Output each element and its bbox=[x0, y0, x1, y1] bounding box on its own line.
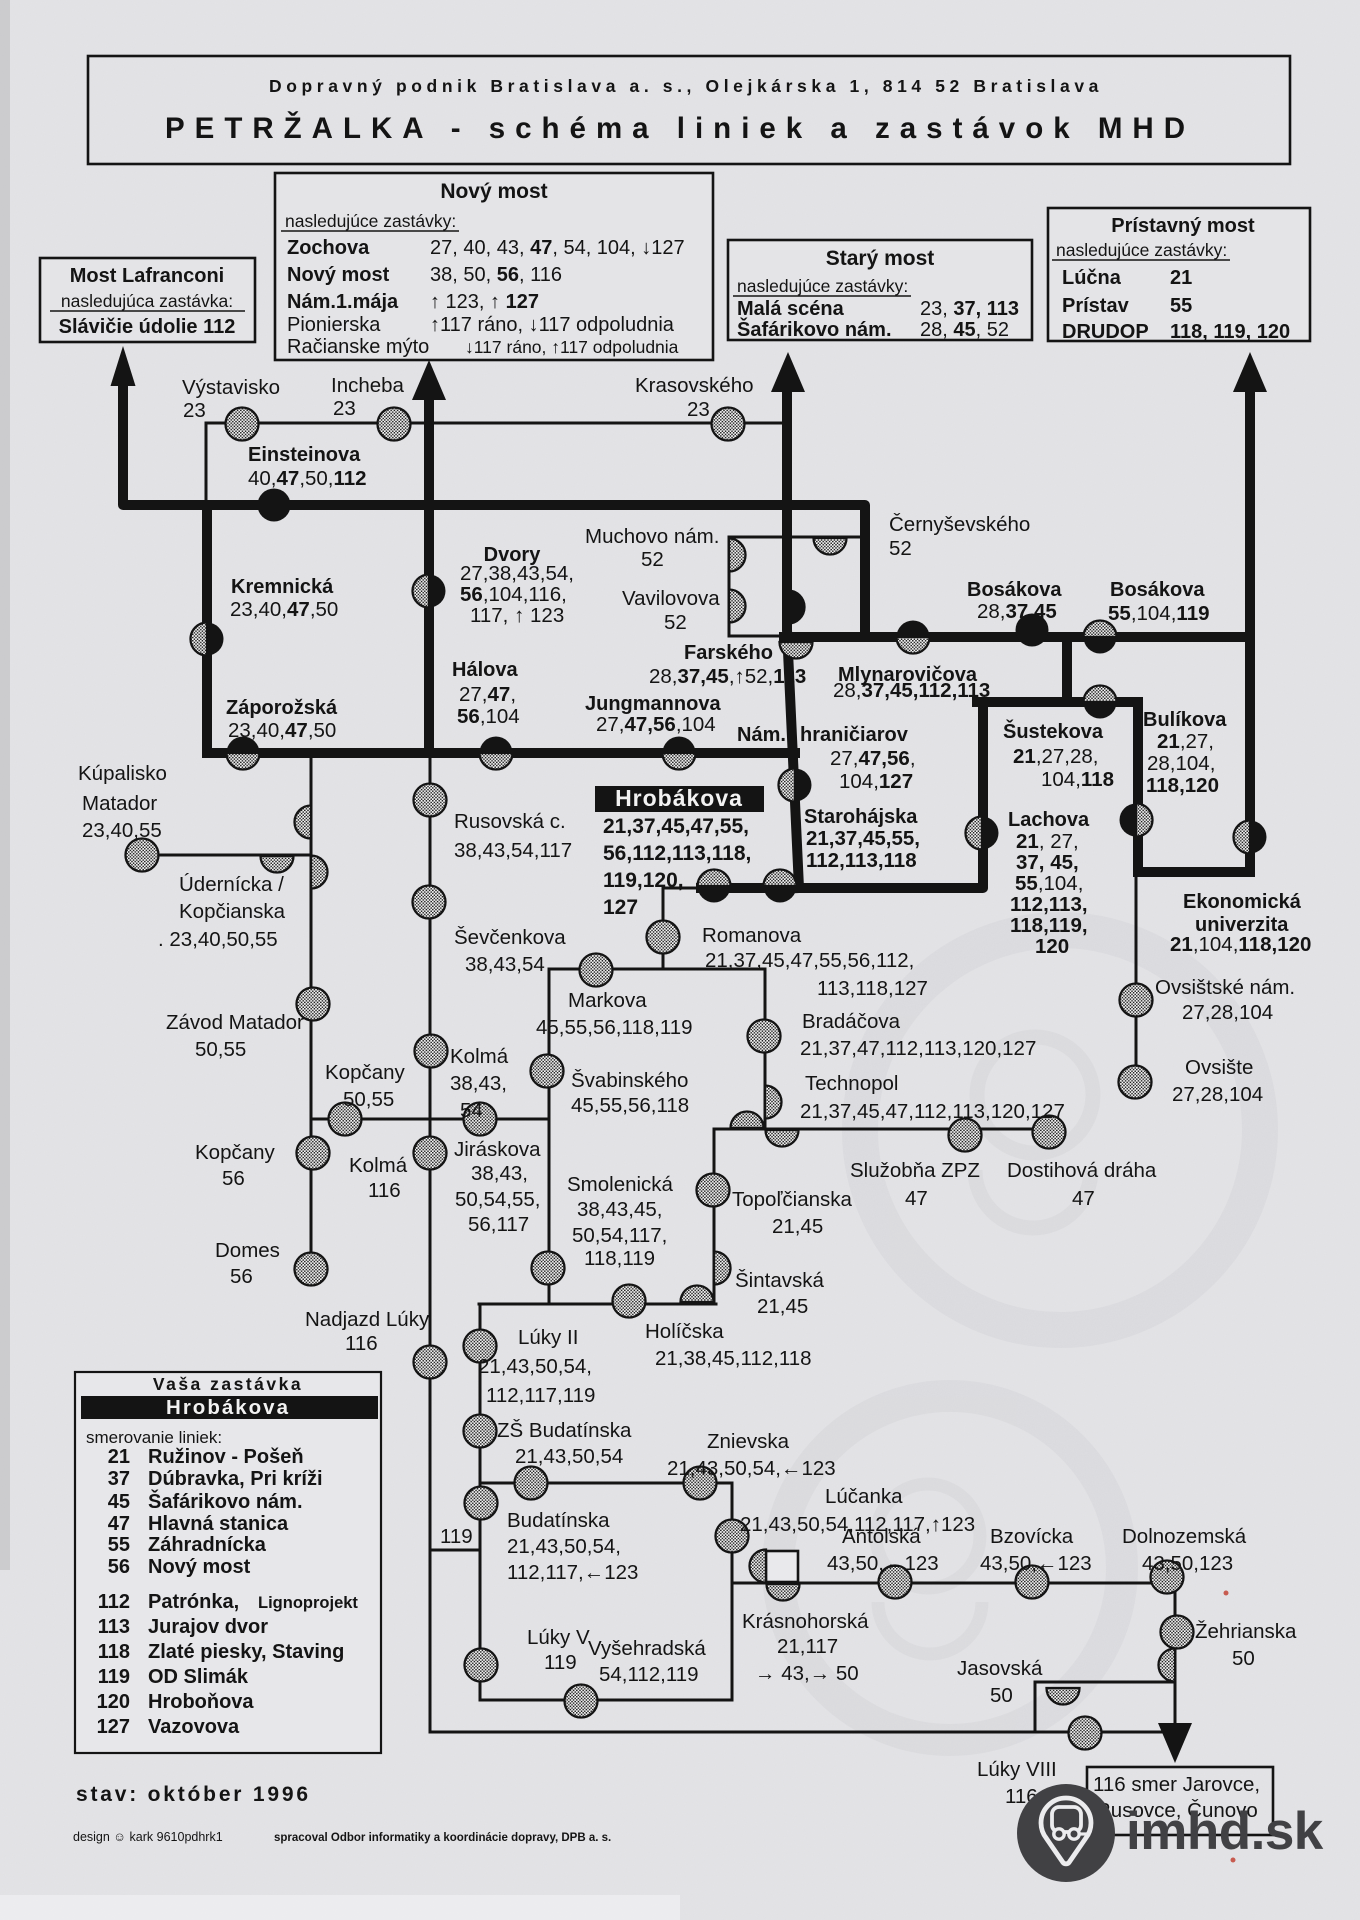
svg-text:DRUDOP: DRUDOP bbox=[1062, 321, 1149, 343]
svg-text:118, 119, 120: 118, 119, 120 bbox=[1170, 321, 1290, 343]
svg-text:Žehrianska: Žehrianska bbox=[1195, 1620, 1297, 1643]
svg-text:hraničiarov: hraničiarov bbox=[800, 724, 909, 746]
svg-text:38,43,45,: 38,43,45, bbox=[577, 1198, 663, 1221]
svg-text:Lúčanka: Lúčanka bbox=[825, 1485, 903, 1508]
svg-text:Záhradnícka: Záhradnícka bbox=[148, 1534, 267, 1556]
svg-text:119: 119 bbox=[98, 1666, 130, 1688]
svg-text:21,37,45,47,112,113,120,127: 21,37,45,47,112,113,120,127 bbox=[800, 1100, 1065, 1123]
svg-text:Smolenická: Smolenická bbox=[567, 1173, 674, 1196]
svg-text:21,38,45,112,118: 21,38,45,112,118 bbox=[655, 1347, 812, 1370]
svg-text:27,47,56,104: 27,47,56,104 bbox=[596, 713, 716, 736]
svg-text:27,38,43,54,: 27,38,43,54, bbox=[460, 562, 574, 585]
svg-text:21,37,47,112,113,120,127: 21,37,47,112,113,120,127 bbox=[800, 1037, 1036, 1060]
svg-text:Hroboňova: Hroboňova bbox=[148, 1691, 254, 1713]
svg-text:Šafárikovo nám.: Šafárikovo nám. bbox=[148, 1489, 303, 1513]
svg-text:38,43,54: 38,43,54 bbox=[465, 953, 545, 976]
svg-text:Výstavisko: Výstavisko bbox=[182, 376, 280, 399]
svg-text:21,27,: 21,27, bbox=[1157, 730, 1214, 753]
svg-text:Jurajov dvor: Jurajov dvor bbox=[148, 1616, 268, 1638]
svg-text:Lúky VIII: Lúky VIII bbox=[977, 1758, 1057, 1781]
svg-text:112,113,: 112,113, bbox=[1010, 893, 1088, 916]
svg-text:21,37,45,47,55,56,112,: 21,37,45,47,55,56,112, bbox=[705, 949, 914, 972]
svg-text:38,43,: 38,43, bbox=[450, 1072, 507, 1095]
svg-text:119: 119 bbox=[440, 1525, 473, 1548]
svg-text:Bzovícka: Bzovícka bbox=[990, 1525, 1074, 1548]
svg-text:Patrónka,: Patrónka, bbox=[148, 1591, 239, 1613]
svg-text:28,37,45,112,113: 28,37,45,112,113 bbox=[833, 679, 990, 702]
svg-text:21,104,118,120: 21,104,118,120 bbox=[1170, 933, 1311, 956]
svg-text:23: 23 bbox=[687, 398, 710, 421]
svg-text:50,54,117,: 50,54,117, bbox=[572, 1224, 667, 1247]
svg-text:↓117 ráno, ↑117 odpoludnia: ↓117 ráno, ↑117 odpoludnia bbox=[465, 337, 679, 357]
svg-text:design ☺ kark 9610pdhrk1: design ☺ kark 9610pdhrk1 bbox=[73, 1830, 223, 1844]
svg-text:113: 113 bbox=[98, 1616, 130, 1638]
svg-text:Einsteinova: Einsteinova bbox=[248, 444, 361, 466]
svg-text:116 smer Jarovce,: 116 smer Jarovce, bbox=[1093, 1773, 1260, 1796]
svg-text:Incheba: Incheba bbox=[331, 374, 405, 397]
svg-text:43,50,123: 43,50,123 bbox=[1142, 1552, 1233, 1575]
svg-text:Hálova: Hálova bbox=[452, 659, 518, 681]
svg-text:Vazovova: Vazovova bbox=[148, 1716, 240, 1738]
svg-text:Hrobákova: Hrobákova bbox=[166, 1396, 290, 1419]
svg-text:Šintavská: Šintavská bbox=[735, 1269, 824, 1292]
svg-text:Ovsište: Ovsište bbox=[1185, 1056, 1253, 1079]
svg-text:112,117,←123: 112,117,←123 bbox=[507, 1561, 638, 1584]
svg-text:40,47,50,112: 40,47,50,112 bbox=[248, 467, 367, 490]
svg-text:Šustekova: Šustekova bbox=[1003, 719, 1104, 743]
svg-text:119,120,: 119,120, bbox=[603, 869, 684, 892]
svg-text:127: 127 bbox=[97, 1716, 130, 1738]
svg-text:21,43,50,54,: 21,43,50,54, bbox=[478, 1355, 592, 1378]
svg-text:21,43,50,54: 21,43,50,54 bbox=[515, 1445, 623, 1468]
svg-text:21, 27,: 21, 27, bbox=[1016, 830, 1079, 853]
svg-text:104,118: 104,118 bbox=[1041, 768, 1114, 791]
svg-text:Ružinov - Pošeň: Ružinov - Pošeň bbox=[148, 1446, 304, 1468]
svg-text:Muchovo nám.: Muchovo nám. bbox=[585, 525, 719, 548]
svg-text:Nový most: Nový most bbox=[440, 180, 547, 203]
svg-text:Bradáčova: Bradáčova bbox=[802, 1010, 901, 1033]
svg-text:Hlavná stanica: Hlavná stanica bbox=[148, 1513, 289, 1535]
svg-text:Lúky II: Lúky II bbox=[518, 1326, 578, 1349]
svg-text:21,45: 21,45 bbox=[772, 1215, 823, 1238]
svg-text:Bosákova: Bosákova bbox=[1110, 579, 1205, 601]
svg-text:37, 45,: 37, 45, bbox=[1016, 851, 1079, 874]
svg-text:38, 50, 56, 116: 38, 50, 56, 116 bbox=[430, 264, 562, 286]
svg-text:Vaša zastávka: Vaša zastávka bbox=[153, 1374, 303, 1394]
svg-text:54,112,119: 54,112,119 bbox=[599, 1663, 699, 1686]
svg-text:28,37,45: 28,37,45 bbox=[977, 600, 1057, 623]
svg-text:21,43,50,54,←123: 21,43,50,54,←123 bbox=[667, 1457, 836, 1480]
svg-text:. 23,40,50,55: . 23,40,50,55 bbox=[158, 928, 278, 951]
svg-text:imhd.sk: imhd.sk bbox=[1126, 1802, 1324, 1861]
svg-text:Kopčianska: Kopčianska bbox=[179, 900, 286, 923]
svg-text:Lúky V: Lúky V bbox=[527, 1626, 590, 1649]
svg-text:27,47,: 27,47, bbox=[459, 683, 516, 706]
svg-text:21: 21 bbox=[108, 1446, 130, 1468]
svg-text:Nový most: Nový most bbox=[287, 264, 390, 286]
svg-text:27,47,56,: 27,47,56, bbox=[830, 747, 916, 770]
svg-text:Nám.1.mája: Nám.1.mája bbox=[287, 291, 399, 313]
svg-text:23,40,47,50: 23,40,47,50 bbox=[230, 598, 338, 621]
svg-text:nasledujúce zastávky:: nasledujúce zastávky: bbox=[737, 276, 908, 296]
svg-text:21: 21 bbox=[1170, 267, 1192, 289]
svg-text:Technopol: Technopol bbox=[805, 1072, 898, 1095]
svg-text:Služobňa ZPZ: Služobňa ZPZ bbox=[850, 1159, 980, 1182]
svg-text:Topoľčianska: Topoľčianska bbox=[732, 1188, 853, 1211]
svg-text:Starý most: Starý most bbox=[826, 247, 935, 270]
svg-text:127: 127 bbox=[603, 896, 638, 919]
svg-text:56,117: 56,117 bbox=[468, 1213, 529, 1236]
svg-text:Ekonomická: Ekonomická bbox=[1183, 891, 1302, 913]
svg-text:56: 56 bbox=[108, 1556, 130, 1578]
svg-text:Dostihová dráha: Dostihová dráha bbox=[1007, 1159, 1157, 1182]
svg-text:Znievska: Znievska bbox=[707, 1430, 790, 1453]
svg-text:56,104,116,: 56,104,116, bbox=[460, 583, 567, 606]
svg-text:Starohájska: Starohájska bbox=[804, 806, 918, 828]
svg-text:Hrobákova: Hrobákova bbox=[615, 785, 743, 811]
svg-text:→ 43,→ 50: → 43,→ 50 bbox=[755, 1662, 859, 1685]
svg-text:Kremnická: Kremnická bbox=[231, 576, 334, 598]
svg-text:PETRŽALKA - schéma liniek a za: PETRŽALKA - schéma liniek a zastávok MHD bbox=[165, 111, 1195, 145]
svg-text:45,55,56,118: 45,55,56,118 bbox=[571, 1094, 689, 1117]
svg-text:50: 50 bbox=[990, 1684, 1013, 1707]
svg-text:120: 120 bbox=[1035, 935, 1069, 958]
svg-text:47: 47 bbox=[1072, 1187, 1095, 1210]
svg-text:104,127: 104,127 bbox=[839, 770, 913, 793]
svg-text:118,120: 118,120 bbox=[1146, 774, 1219, 797]
svg-text:23,40,55: 23,40,55 bbox=[82, 819, 162, 842]
svg-text:23, 37, 113: 23, 37, 113 bbox=[920, 298, 1019, 320]
svg-text:55,104,: 55,104, bbox=[1015, 872, 1083, 895]
svg-text:Budatínska: Budatínska bbox=[507, 1509, 610, 1532]
svg-text:↑117 ráno, ↓117 odpoludnia: ↑117 ráno, ↓117 odpoludnia bbox=[430, 314, 675, 336]
svg-text:Zlaté piesky, Staving: Zlaté piesky, Staving bbox=[148, 1641, 344, 1663]
svg-text:Farského: Farského bbox=[684, 642, 773, 664]
svg-text:OD Slimák: OD Slimák bbox=[148, 1666, 249, 1688]
svg-text:nasledujúce zastávky:: nasledujúce zastávky: bbox=[285, 211, 456, 231]
svg-text:37: 37 bbox=[108, 1468, 130, 1490]
svg-text:Kopčany: Kopčany bbox=[195, 1141, 276, 1164]
svg-text:Krásnohorská: Krásnohorská bbox=[742, 1610, 869, 1633]
svg-text:Vavilovova: Vavilovova bbox=[622, 587, 720, 610]
svg-text:47: 47 bbox=[108, 1513, 130, 1535]
svg-text:118,119: 118,119 bbox=[584, 1247, 655, 1270]
svg-text:Záporožská: Záporožská bbox=[226, 697, 338, 719]
svg-text:Dolnozemská: Dolnozemská bbox=[1122, 1525, 1247, 1548]
svg-text:118,119,: 118,119, bbox=[1010, 914, 1088, 937]
svg-text:28,37,45,↑52,113: 28,37,45,↑52,113 bbox=[649, 665, 806, 688]
svg-text:Švabinského: Švabinského bbox=[571, 1069, 688, 1092]
svg-text:nasledujúce zastávky:: nasledujúce zastávky: bbox=[1056, 240, 1227, 260]
svg-text:112: 112 bbox=[98, 1591, 130, 1613]
svg-text:120: 120 bbox=[97, 1691, 130, 1713]
svg-text:Nadjazd Lúky: Nadjazd Lúky bbox=[305, 1308, 430, 1331]
svg-text:55: 55 bbox=[1170, 295, 1192, 317]
svg-text:Jungmannova: Jungmannova bbox=[585, 693, 721, 715]
svg-text:27, 40, 43, 47, 54, 104, ↓127: 27, 40, 43, 47, 54, 104, ↓127 bbox=[430, 237, 685, 259]
svg-text:smerovanie liniek:: smerovanie liniek: bbox=[86, 1428, 222, 1447]
svg-text:Kolmá: Kolmá bbox=[349, 1154, 408, 1177]
svg-text:117, ↑ 123: 117, ↑ 123 bbox=[470, 604, 564, 627]
svg-text:Šafárikovo nám.: Šafárikovo nám. bbox=[737, 317, 892, 341]
svg-text:Antolská: Antolská bbox=[842, 1525, 921, 1548]
svg-text:52: 52 bbox=[641, 548, 664, 571]
svg-text:Dúbravka, Pri kríži: Dúbravka, Pri kríži bbox=[148, 1468, 323, 1490]
svg-text:52: 52 bbox=[889, 537, 912, 560]
svg-text:54: 54 bbox=[460, 1099, 483, 1122]
svg-text:55,104,119: 55,104,119 bbox=[1108, 602, 1210, 625]
svg-text:23,40,47,50: 23,40,47,50 bbox=[228, 719, 336, 742]
svg-text:Bosákova: Bosákova bbox=[967, 579, 1062, 601]
svg-text:Prístav: Prístav bbox=[1062, 295, 1130, 317]
svg-text:43,50,←123: 43,50,←123 bbox=[827, 1552, 939, 1575]
svg-text:50,54,55,: 50,54,55, bbox=[455, 1188, 541, 1211]
svg-text:43,50,←123: 43,50,←123 bbox=[980, 1552, 1092, 1575]
svg-text:55: 55 bbox=[108, 1534, 130, 1556]
svg-text:21,117: 21,117 bbox=[777, 1635, 838, 1658]
svg-text:23: 23 bbox=[333, 397, 356, 420]
svg-text:Holíčska: Holíčska bbox=[645, 1320, 724, 1343]
svg-text:Domes: Domes bbox=[215, 1239, 280, 1262]
svg-text:50,55: 50,55 bbox=[195, 1038, 246, 1061]
svg-text:Ševčenkova: Ševčenkova bbox=[454, 926, 566, 949]
svg-text:Slávičie údolie 112: Slávičie údolie 112 bbox=[59, 316, 236, 338]
svg-text:Kúpalisko: Kúpalisko bbox=[78, 762, 167, 785]
svg-text:23: 23 bbox=[183, 399, 206, 422]
svg-text:spracoval Odbor informatiky a: spracoval Odbor informatiky a koordináci… bbox=[274, 1832, 611, 1844]
svg-text:52: 52 bbox=[664, 611, 687, 634]
svg-text:Lachova: Lachova bbox=[1008, 809, 1090, 831]
svg-text:Matador: Matador bbox=[82, 792, 157, 815]
svg-text:27,28,104: 27,28,104 bbox=[1172, 1083, 1263, 1106]
svg-text:118: 118 bbox=[98, 1641, 130, 1663]
svg-text:119: 119 bbox=[544, 1651, 577, 1674]
svg-text:Krasovského: Krasovského bbox=[635, 374, 754, 397]
svg-text:Jiráskova: Jiráskova bbox=[454, 1138, 541, 1161]
svg-text:Nový most: Nový most bbox=[148, 1556, 251, 1578]
svg-text:28,104,: 28,104, bbox=[1147, 752, 1215, 775]
svg-text:stav: október 1996: stav: október 1996 bbox=[76, 1783, 311, 1806]
svg-text:116: 116 bbox=[345, 1332, 378, 1355]
svg-text:Lignoprojekt: Lignoprojekt bbox=[258, 1594, 358, 1612]
svg-text:ZŠ Budatínska: ZŠ Budatínska bbox=[497, 1419, 632, 1442]
svg-text:45: 45 bbox=[108, 1491, 130, 1513]
svg-text:Černyševského: Černyševského bbox=[889, 513, 1030, 536]
svg-text:Závod Matador: Závod Matador bbox=[166, 1011, 304, 1034]
svg-text:Ovsištské nám.: Ovsištské nám. bbox=[1155, 976, 1295, 999]
svg-text:56,112,113,118,: 56,112,113,118, bbox=[603, 842, 751, 865]
svg-text:112,117,119: 112,117,119 bbox=[486, 1384, 595, 1407]
svg-text:38,43,54,117: 38,43,54,117 bbox=[454, 839, 572, 862]
svg-text:50: 50 bbox=[1232, 1647, 1255, 1670]
svg-text:116: 116 bbox=[368, 1179, 401, 1202]
svg-text:56: 56 bbox=[222, 1167, 245, 1190]
svg-text:56: 56 bbox=[230, 1265, 253, 1288]
svg-text:Bulíkova: Bulíkova bbox=[1143, 709, 1227, 731]
svg-text:Kolmá: Kolmá bbox=[450, 1045, 509, 1068]
svg-text:Romanova: Romanova bbox=[702, 924, 802, 947]
svg-text:Vyšehradská: Vyšehradská bbox=[588, 1637, 706, 1660]
svg-text:21,37,45,47,55,: 21,37,45,47,55, bbox=[603, 815, 749, 838]
svg-text:28, 45, 52: 28, 45, 52 bbox=[920, 319, 1009, 341]
svg-text:21,43,50,54,: 21,43,50,54, bbox=[507, 1535, 621, 1558]
svg-text:Jasovská: Jasovská bbox=[957, 1657, 1043, 1680]
svg-text:50,55: 50,55 bbox=[343, 1088, 394, 1111]
svg-text:Most Lafranconi: Most Lafranconi bbox=[70, 265, 224, 287]
svg-text:Zochova: Zochova bbox=[287, 237, 370, 259]
svg-text:nasledujúca zastávka:: nasledujúca zastávka: bbox=[61, 291, 233, 311]
svg-text:Lúčna: Lúčna bbox=[1062, 267, 1122, 289]
svg-text:Markova: Markova bbox=[568, 989, 647, 1012]
svg-text:45,55,56,118,119: 45,55,56,118,119 bbox=[536, 1016, 693, 1039]
svg-text:56,104: 56,104 bbox=[457, 705, 520, 728]
svg-text:Kopčany: Kopčany bbox=[325, 1061, 406, 1084]
svg-text:113,118,127: 113,118,127 bbox=[817, 977, 928, 1000]
svg-text:Dopravný podnik Bratislava a.: Dopravný podnik Bratislava a. s., Olejká… bbox=[269, 76, 1103, 96]
svg-text:Pionierska: Pionierska bbox=[287, 314, 381, 336]
svg-text:38,43,: 38,43, bbox=[471, 1162, 528, 1185]
svg-text:21,37,45,55,: 21,37,45,55, bbox=[806, 827, 920, 850]
svg-text:Malá scéna: Malá scéna bbox=[737, 298, 845, 320]
svg-text:Údernícka /: Údernícka / bbox=[179, 873, 284, 896]
svg-text:47: 47 bbox=[905, 1187, 928, 1210]
svg-text:Nám.: Nám. bbox=[737, 724, 786, 746]
svg-text:Račianske mýto: Račianske mýto bbox=[287, 336, 429, 358]
svg-text:↑ 123, ↑ 127: ↑ 123, ↑ 127 bbox=[430, 291, 539, 313]
svg-text:112,113,118: 112,113,118 bbox=[806, 849, 917, 872]
svg-text:21,45: 21,45 bbox=[757, 1295, 808, 1318]
svg-text:Prístavný most: Prístavný most bbox=[1111, 215, 1255, 237]
svg-text:27,28,104: 27,28,104 bbox=[1182, 1001, 1273, 1024]
svg-text:21,27,28,: 21,27,28, bbox=[1013, 745, 1099, 768]
svg-text:Rusovská c.: Rusovská c. bbox=[454, 810, 566, 833]
